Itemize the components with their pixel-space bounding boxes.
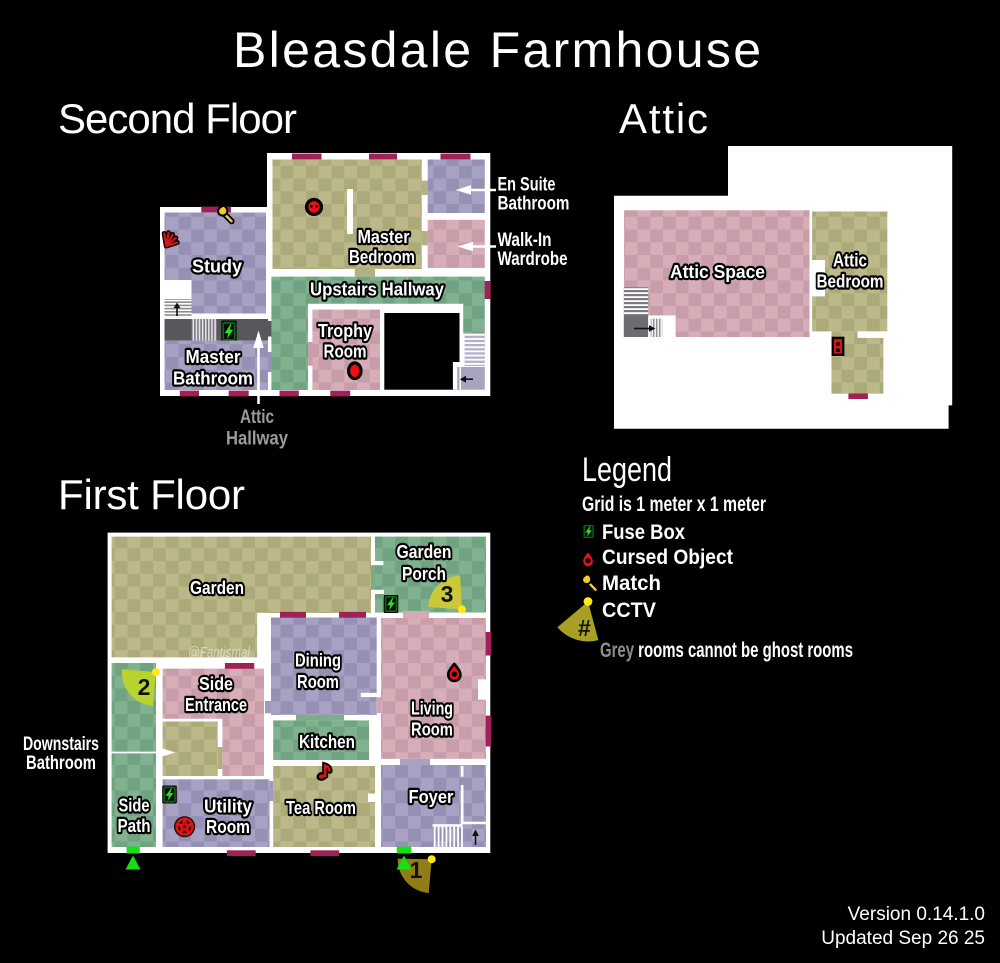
svg-text:Upstairs Hallway: Upstairs Hallway (310, 279, 444, 300)
svg-text:2: 2 (138, 674, 151, 700)
svg-text:Bathroom: Bathroom (26, 752, 96, 774)
svg-text:Living: Living (411, 698, 453, 719)
svg-text:Master: Master (358, 226, 411, 247)
svg-text:Porch: Porch (402, 563, 446, 584)
svg-text:Walk-In: Walk-In (498, 230, 552, 251)
svg-text:Side: Side (119, 794, 150, 815)
svg-text:1: 1 (410, 857, 423, 883)
svg-text:Foyer: Foyer (409, 786, 455, 807)
svg-text:Attic Space: Attic Space (670, 261, 765, 282)
svg-text:Grid is 1 meter x 1 meter: Grid is 1 meter x 1 meter (582, 493, 766, 516)
svg-text:Entrance: Entrance (185, 694, 247, 715)
svg-text:Updated Sep 26 25: Updated Sep 26 25 (821, 928, 985, 949)
svg-text:Trophy: Trophy (318, 320, 372, 341)
svg-text:Side: Side (199, 673, 233, 694)
svg-text:Tea Room: Tea Room (286, 797, 356, 818)
svg-text:Path: Path (118, 815, 151, 836)
svg-text:Version 0.14.1.0: Version 0.14.1.0 (848, 904, 985, 925)
svg-text:En Suite: En Suite (498, 175, 556, 196)
svg-text:Garden: Garden (190, 577, 244, 598)
svg-text:Study: Study (192, 256, 243, 277)
svg-text:Master: Master (186, 346, 242, 367)
svg-text:Bedroom: Bedroom (817, 270, 884, 291)
svg-text:Bathroom: Bathroom (173, 368, 253, 389)
svg-text:Hallway: Hallway (226, 428, 288, 450)
svg-text:Cursed Object: Cursed Object (602, 546, 733, 569)
svg-text:Room: Room (324, 341, 367, 362)
svg-text:Room: Room (206, 816, 250, 837)
svg-text:Dining: Dining (295, 650, 341, 671)
svg-text:Room: Room (297, 671, 339, 692)
svg-text:Bathroom: Bathroom (498, 194, 570, 215)
svg-text:@Fantismal: @Fantismal (188, 644, 251, 661)
svg-text:Legend: Legend (582, 451, 672, 489)
svg-text:Attic: Attic (240, 406, 274, 428)
svg-text:Second Floor: Second Floor (58, 95, 297, 142)
svg-text:Attic: Attic (833, 250, 867, 271)
svg-text:CCTV: CCTV (602, 599, 656, 622)
svg-text:Room: Room (411, 718, 453, 739)
svg-text:Kitchen: Kitchen (299, 731, 355, 752)
svg-text:3: 3 (441, 581, 454, 607)
svg-text:#: # (578, 615, 591, 641)
svg-text:Grey rooms cannot be ghost roo: Grey rooms cannot be ghost rooms (600, 639, 853, 662)
svg-text:Wardrobe: Wardrobe (498, 249, 568, 270)
svg-text:First Floor: First Floor (58, 471, 245, 518)
svg-text:Bedroom: Bedroom (349, 246, 415, 267)
svg-text:Garden: Garden (397, 541, 452, 562)
svg-text:Bleasdale Farmhouse: Bleasdale Farmhouse (233, 22, 761, 78)
svg-text:Attic: Attic (619, 95, 708, 142)
svg-text:Utility: Utility (204, 795, 253, 816)
svg-text:Fuse Box: Fuse Box (602, 521, 685, 544)
svg-text:Match: Match (602, 572, 661, 595)
